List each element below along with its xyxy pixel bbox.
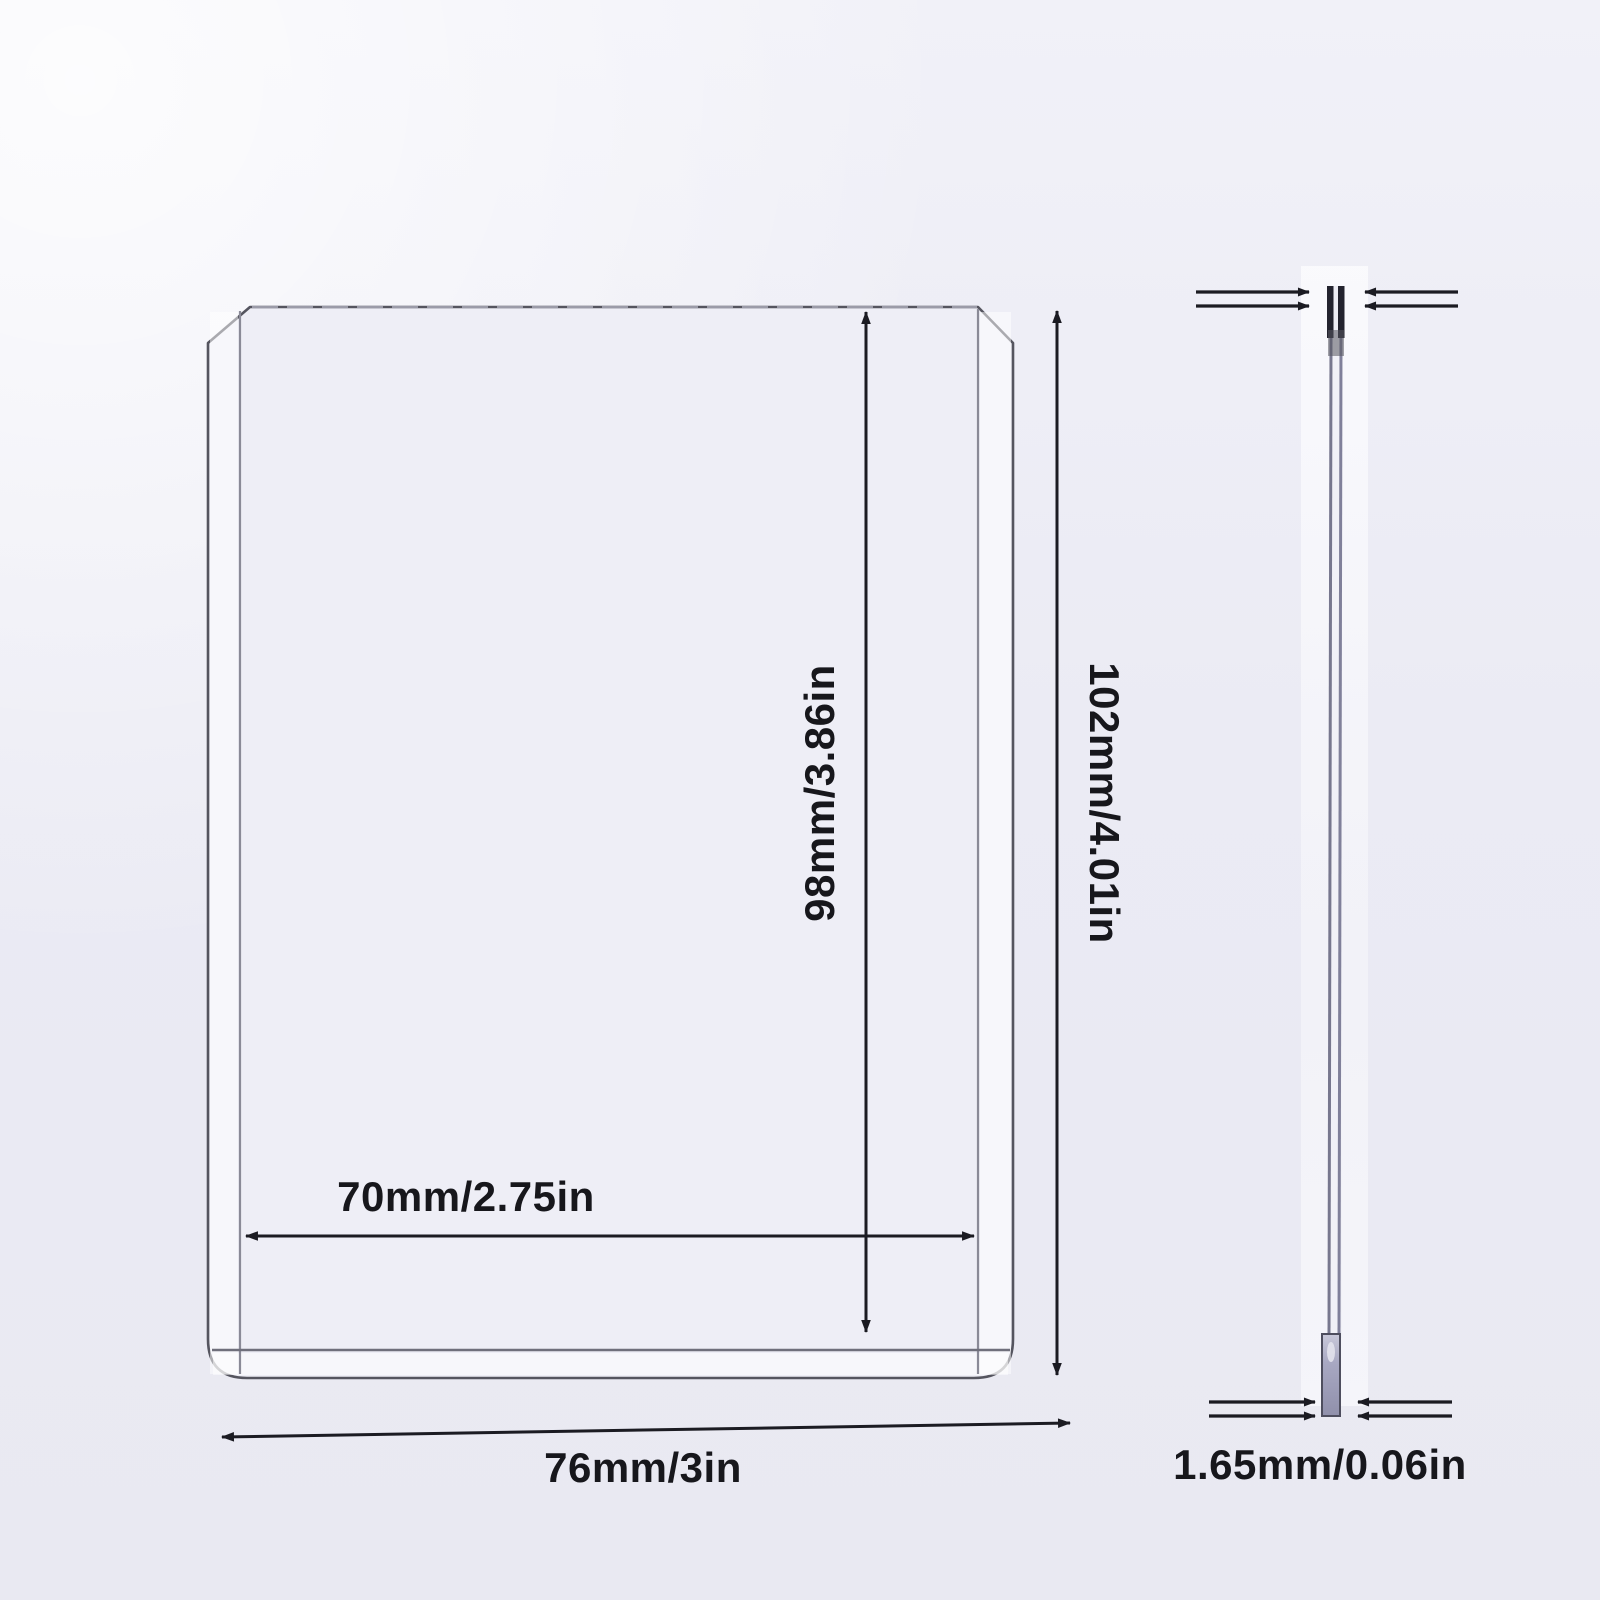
outer-width-label: 76mm/3in — [544, 1444, 742, 1491]
card-right-wall-highlight — [980, 312, 1011, 1374]
card-left-wall-highlight — [210, 312, 238, 1374]
card-sleeve-dimension-diagram: 98mm/3.86in 102mm/4.01in 70mm/2.75in 76m… — [0, 0, 1600, 1600]
thickness-label: 1.65mm/0.06in — [1173, 1441, 1467, 1488]
side-strip-bottom-segment — [1322, 1334, 1340, 1416]
inner-width-label: 70mm/2.75in — [337, 1173, 595, 1220]
side-strip-top-segment — [1327, 286, 1345, 356]
card-front-outline — [208, 307, 1013, 1378]
outer-height-label: 102mm/4.01in — [1081, 662, 1128, 944]
front-view: 98mm/3.86in 102mm/4.01in 70mm/2.75in 76m… — [208, 307, 1128, 1491]
inner-height-label: 98mm/3.86in — [796, 664, 843, 922]
side-strip-left-wall — [1329, 336, 1331, 1336]
side-strip-right-wall — [1339, 336, 1341, 1336]
card-bottom-wall-highlight — [213, 1353, 1008, 1375]
